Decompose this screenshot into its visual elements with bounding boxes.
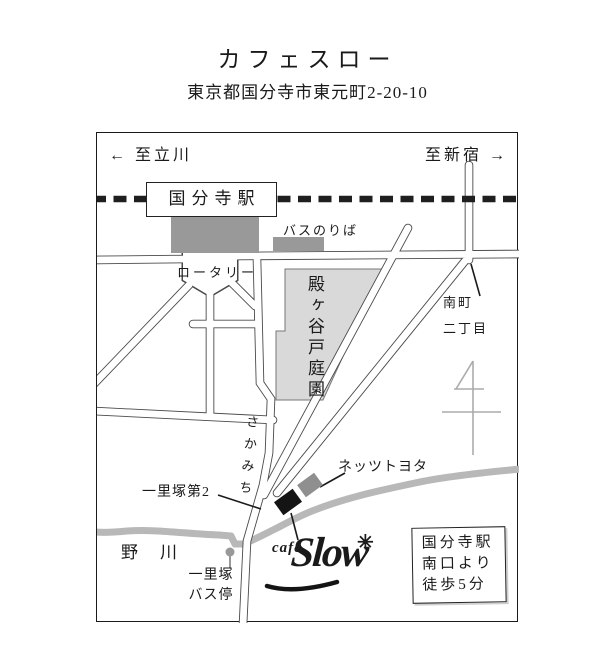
bus-boarding-label: バスのりば — [283, 220, 358, 239]
ichirizuka-dai2-label: 一里塚第2 — [142, 481, 210, 501]
left-arrow-icon: ← — [109, 147, 128, 164]
bus-stop-line1: 一里塚 — [177, 566, 245, 586]
direction-shinjuku: 至新宿 → — [425, 141, 508, 165]
walk-info-line3: 徒歩5分 — [422, 574, 505, 596]
bus-stop-line2: バス停 — [177, 586, 245, 606]
crossing-mark-icon — [442, 361, 501, 455]
direction-tachikawa: ← 至立川 — [109, 141, 192, 165]
netz-toyota-label: ネッツトヨタ — [338, 456, 428, 476]
minamicho-line2: 二丁目 — [443, 316, 488, 342]
logo-swash — [267, 582, 337, 589]
tonogayato-garden-label: 殿ヶ谷戸庭園 — [302, 275, 327, 415]
netz-toyota-building — [297, 473, 323, 497]
kokubunji-station-box: 国分寺駅 — [146, 182, 277, 217]
access-map: ← 至立川 至新宿 → 国分寺駅 バスのりば ロータリー 殿ヶ谷戸庭園 南町 二… — [96, 132, 518, 622]
to-shinjuku-label: 至新宿 — [425, 147, 482, 164]
minamicho-label: 南町 二丁目 — [443, 290, 488, 342]
bus-stop-sign-icon — [226, 548, 235, 557]
to-tachikawa-label: 至立川 — [135, 147, 192, 164]
walk-info-box: 国分寺駅 南口より 徒歩5分 — [411, 526, 506, 604]
page-title: カフェスロー — [0, 40, 615, 74]
logo-star-icon: ✳ — [357, 530, 374, 555]
nogawa-river-label: 野川 — [121, 538, 199, 563]
walk-info-line1: 国分寺駅 — [421, 532, 504, 554]
page-address: 東京都国分寺市東元町2-20-10 — [0, 78, 615, 103]
ichirizuka-bus-stop-label: 一里塚 バス停 — [177, 566, 245, 606]
station-building — [171, 212, 259, 253]
minamicho-line1: 南町 — [443, 290, 488, 316]
right-arrow-icon: → — [489, 147, 508, 164]
rotary-label: ロータリー — [177, 262, 257, 281]
walk-info-line2: 南口より — [422, 553, 505, 575]
bus-boarding-area — [273, 237, 324, 251]
